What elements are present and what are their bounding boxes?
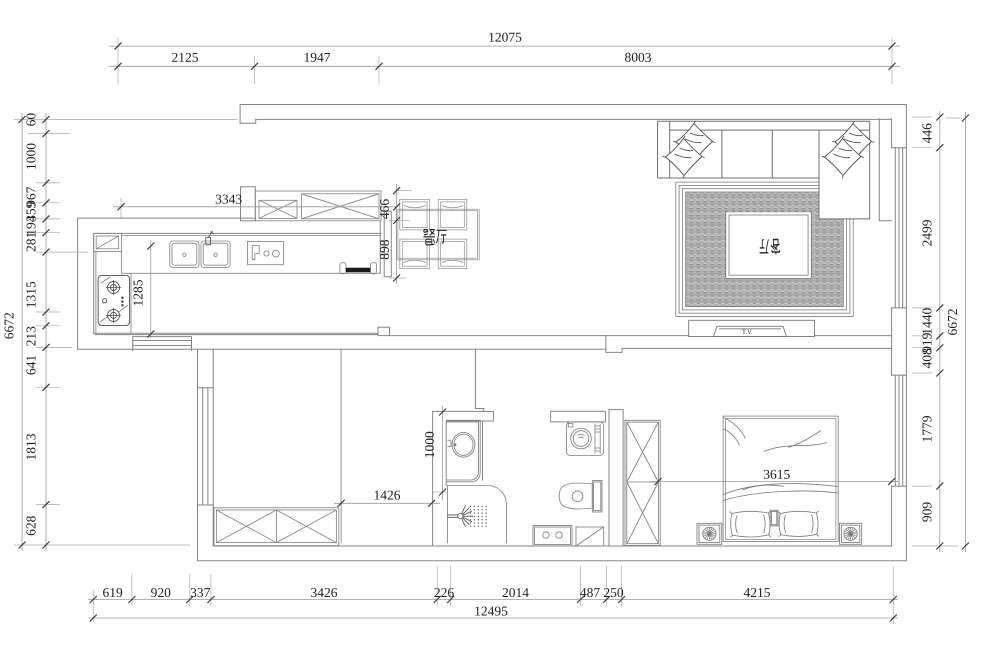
svg-text:12495: 12495 <box>474 603 508 618</box>
svg-text:8003: 8003 <box>624 50 651 65</box>
svg-text:213: 213 <box>24 326 39 347</box>
svg-text:60: 60 <box>24 113 39 127</box>
svg-text:12075: 12075 <box>488 30 522 45</box>
svg-text:6672: 6672 <box>2 312 17 339</box>
svg-text:1779: 1779 <box>919 415 934 442</box>
svg-text:226: 226 <box>434 585 455 600</box>
svg-text:628: 628 <box>24 515 39 536</box>
svg-text:6672: 6672 <box>945 309 960 336</box>
svg-text:920: 920 <box>151 585 172 600</box>
svg-text:446: 446 <box>919 123 934 144</box>
svg-text:466: 466 <box>377 199 392 220</box>
svg-text:2014: 2014 <box>502 585 529 600</box>
svg-text:1426: 1426 <box>373 487 400 502</box>
svg-text:619: 619 <box>102 585 123 600</box>
svg-text:250: 250 <box>603 585 624 600</box>
svg-text:2125: 2125 <box>171 50 198 65</box>
svg-text:898: 898 <box>377 239 392 260</box>
svg-text:1000: 1000 <box>422 431 437 458</box>
svg-text:3343: 3343 <box>215 191 242 206</box>
svg-text:2499: 2499 <box>919 219 934 246</box>
svg-text:487: 487 <box>580 585 601 600</box>
svg-text:281: 281 <box>24 232 39 252</box>
svg-text:1440: 1440 <box>919 308 934 335</box>
svg-text:1947: 1947 <box>303 50 330 65</box>
svg-text:3615: 3615 <box>763 467 790 482</box>
svg-text:1000: 1000 <box>24 143 39 170</box>
svg-text:4215: 4215 <box>743 585 770 600</box>
svg-text:1813: 1813 <box>24 433 39 460</box>
svg-text:909: 909 <box>919 502 934 523</box>
svg-text:337: 337 <box>190 585 211 600</box>
svg-text:1315: 1315 <box>24 281 39 308</box>
svg-text:1285: 1285 <box>131 279 146 306</box>
svg-text:3426: 3426 <box>310 585 337 600</box>
svg-text:641: 641 <box>24 355 39 375</box>
svg-text:408: 408 <box>919 348 934 369</box>
svg-text:T.V.: T.V. <box>742 329 753 336</box>
